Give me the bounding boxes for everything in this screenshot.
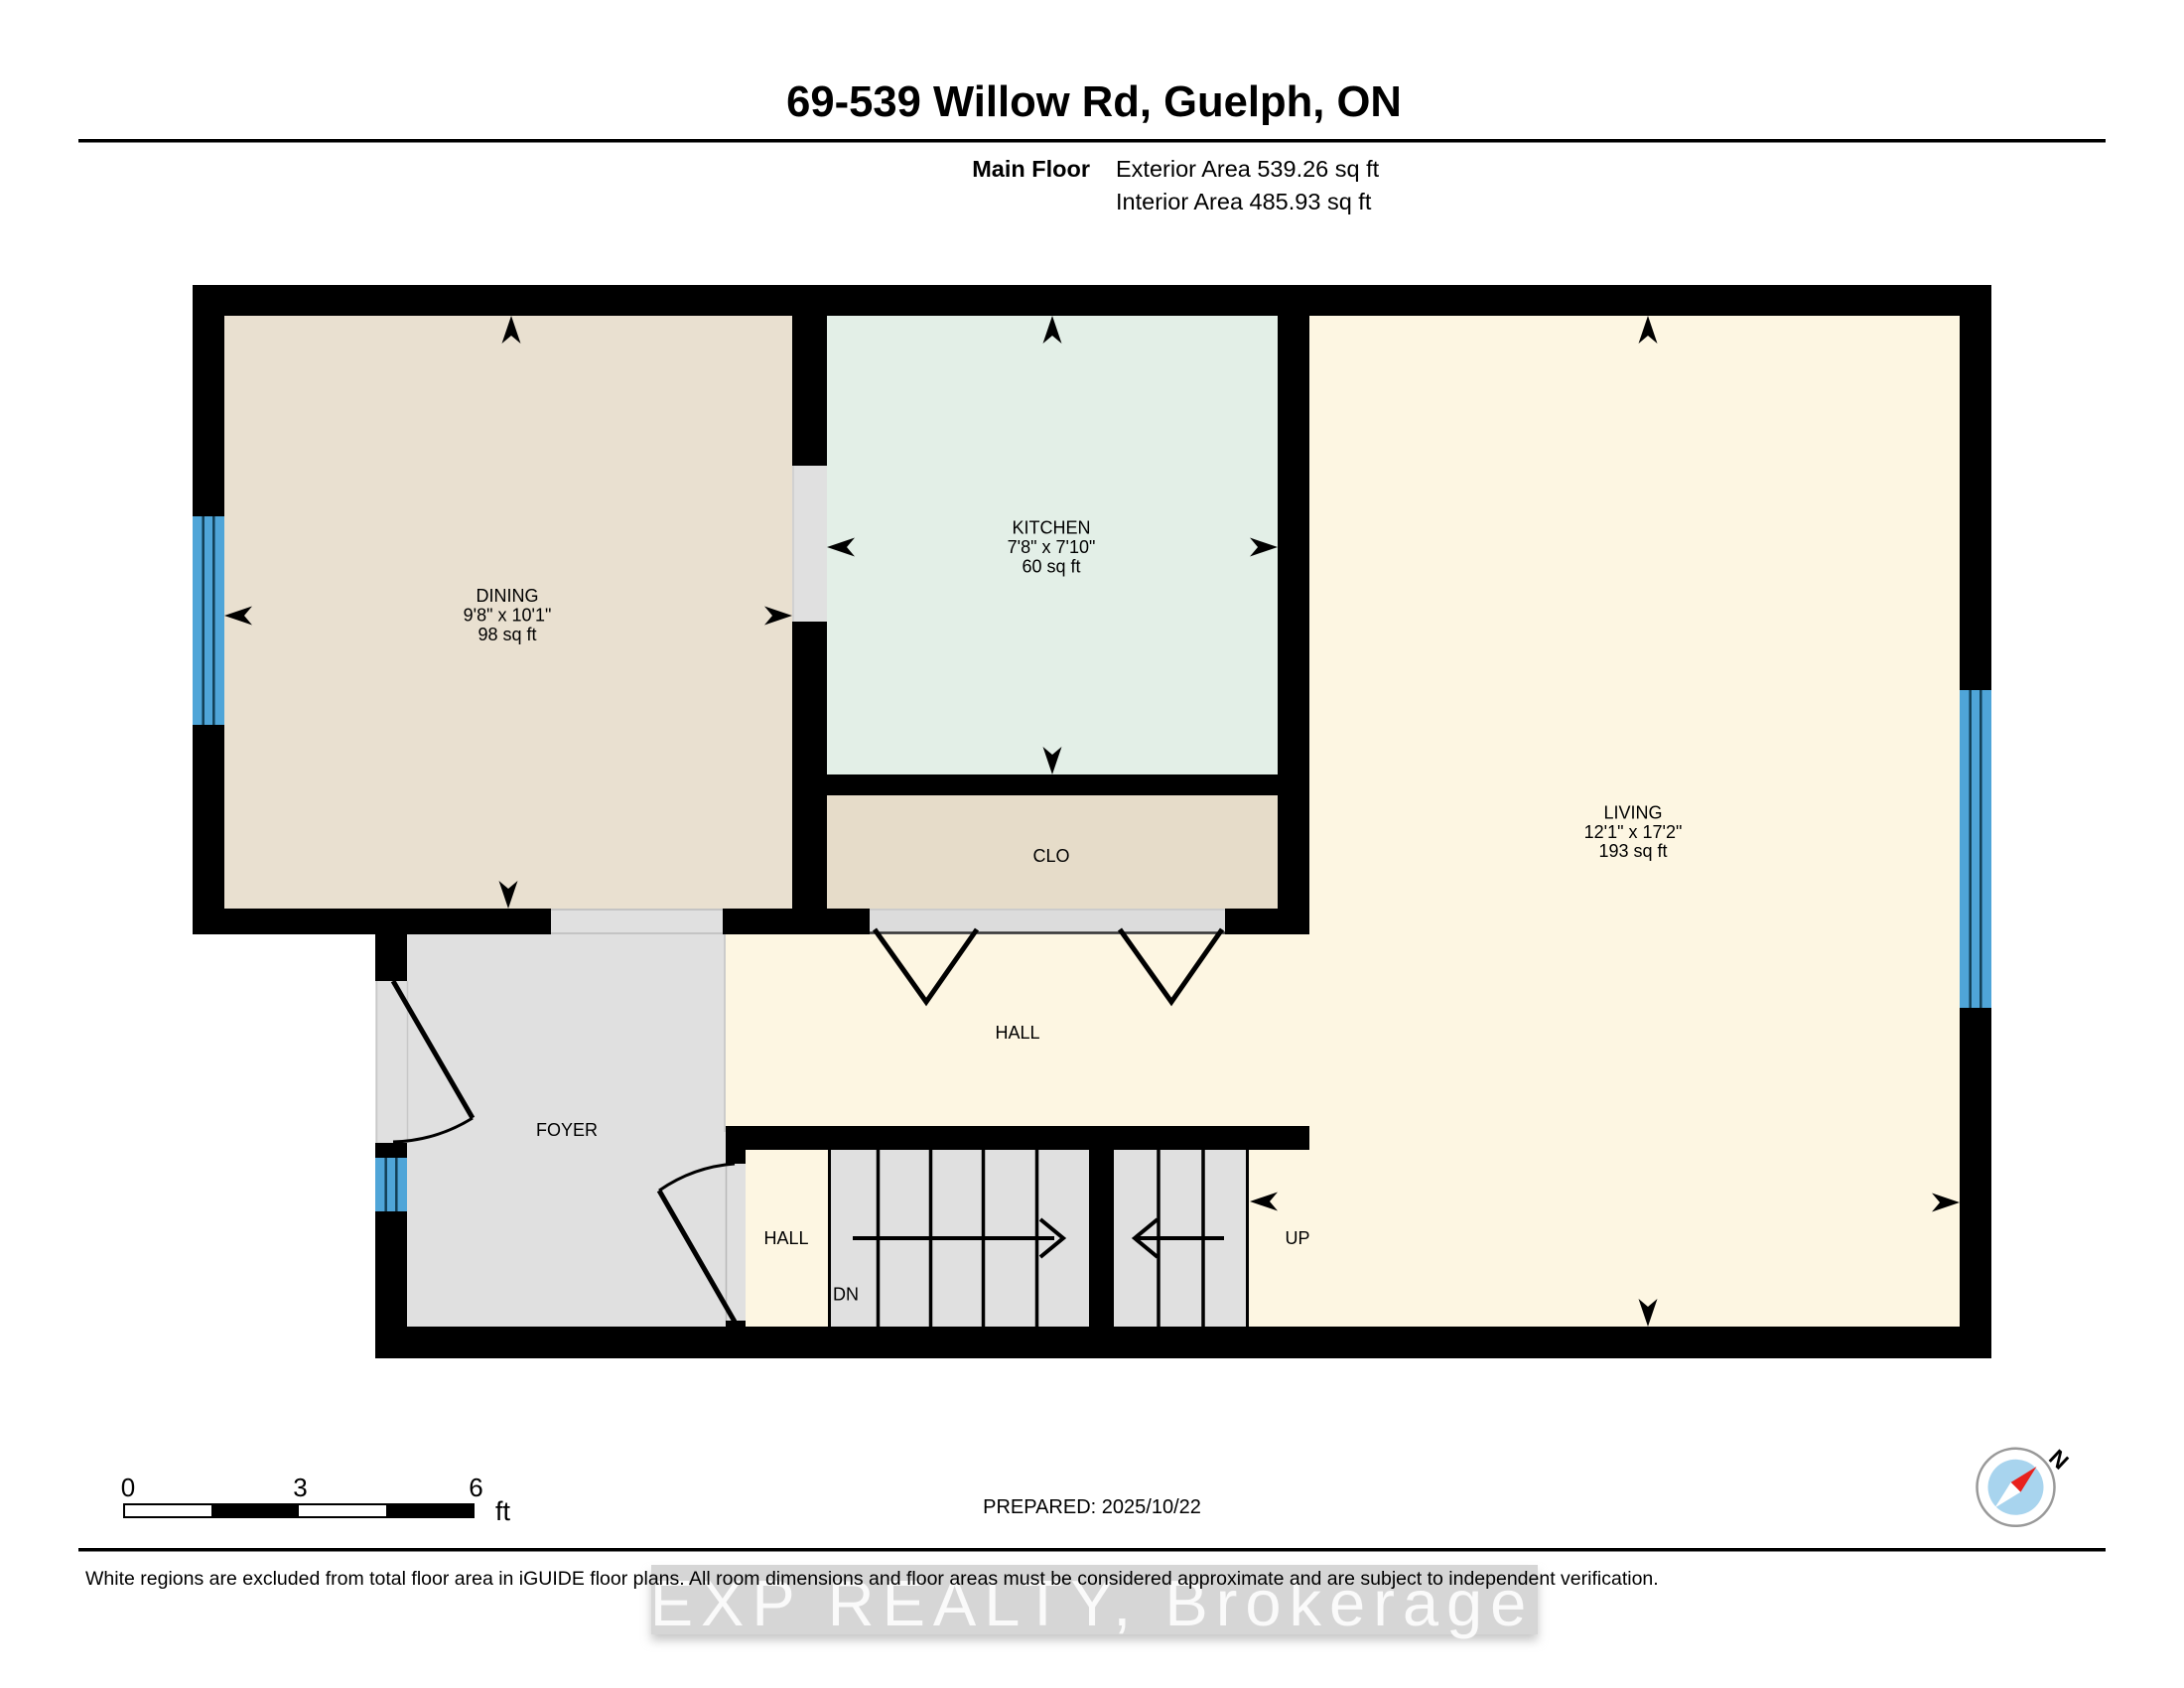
svg-text:7'8" x 7'10": 7'8" x 7'10": [1008, 537, 1096, 557]
svg-text:3: 3: [293, 1473, 307, 1502]
svg-text:LIVING: LIVING: [1603, 802, 1662, 822]
svg-text:CLO: CLO: [1032, 846, 1069, 866]
svg-text:ft: ft: [495, 1496, 511, 1526]
svg-text:193 sq ft: 193 sq ft: [1598, 841, 1667, 861]
svg-text:FOYER: FOYER: [536, 1120, 598, 1140]
svg-text:69-539 Willow Rd, Guelph, ON: 69-539 Willow Rd, Guelph, ON: [786, 78, 1402, 126]
svg-text:DN: DN: [833, 1285, 859, 1305]
svg-text:0: 0: [121, 1473, 135, 1502]
svg-text:HALL: HALL: [995, 1023, 1039, 1043]
svg-text:White regions are excluded fro: White regions are excluded from total fl…: [85, 1568, 1659, 1590]
svg-text:Exterior Area 539.26 sq ft: Exterior Area 539.26 sq ft: [1116, 156, 1380, 182]
svg-text:Main Floor: Main Floor: [972, 156, 1090, 182]
svg-text:6: 6: [469, 1473, 482, 1502]
svg-text:KITCHEN: KITCHEN: [1012, 517, 1090, 537]
svg-text:Interior Area 485.93 sq ft: Interior Area 485.93 sq ft: [1116, 189, 1372, 214]
svg-text:60 sq ft: 60 sq ft: [1022, 556, 1080, 576]
svg-text:PREPARED: 2025/10/22: PREPARED: 2025/10/22: [983, 1496, 1201, 1518]
svg-text:UP: UP: [1285, 1228, 1309, 1248]
svg-text:12'1" x 17'2": 12'1" x 17'2": [1584, 822, 1683, 842]
svg-text:98 sq ft: 98 sq ft: [478, 625, 536, 644]
svg-text:9'8" x 10'1": 9'8" x 10'1": [464, 605, 552, 625]
svg-text:HALL: HALL: [763, 1228, 808, 1248]
svg-text:DINING: DINING: [477, 586, 539, 606]
